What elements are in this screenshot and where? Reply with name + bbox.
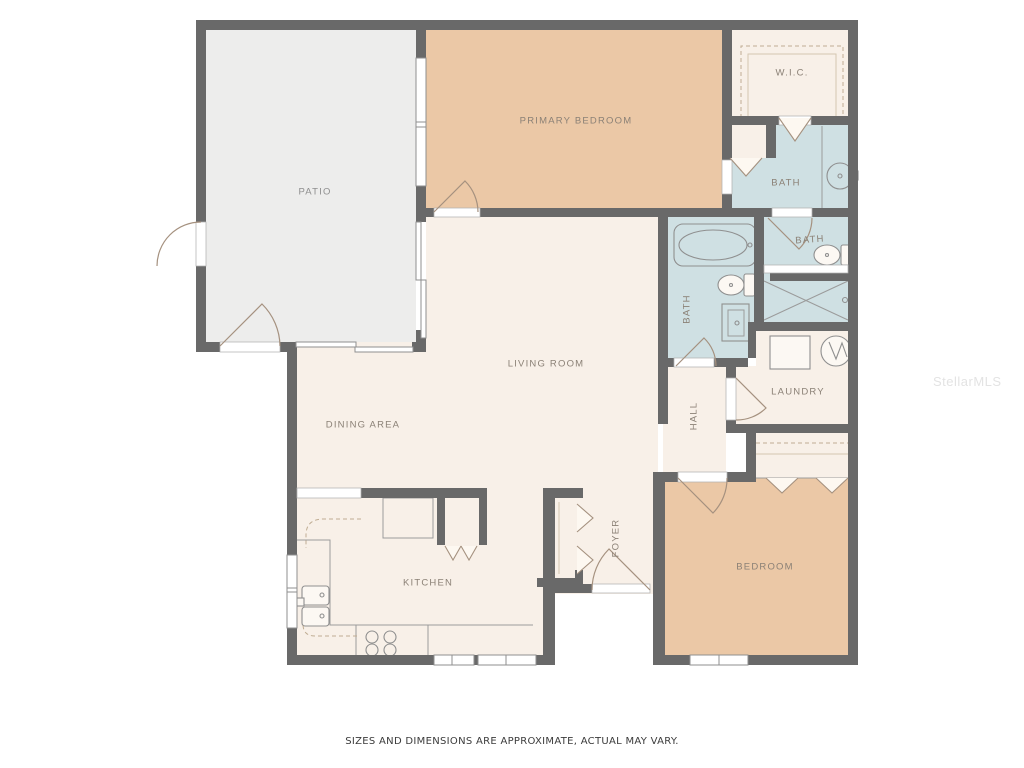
disclaimer-text: SIZES AND DIMENSIONS ARE APPROXIMATE, AC… [345,736,679,747]
room-label-bedroom: BEDROOM [736,562,794,573]
toilet-hall-bath [718,274,755,296]
living-room-floor [426,216,658,494]
room-label-living-room: LIVING ROOM [508,359,585,370]
bedroom-closet-floor [756,433,848,478]
washer [770,336,810,369]
room-label-primary-bedroom: PRIMARY BEDROOM [520,116,633,127]
shower-curb [764,265,848,273]
room-label-kitchen: KITCHEN [403,578,453,589]
dining-area-floor [292,342,426,494]
room-label-dining-area: DINING AREA [326,420,400,431]
room-label-laundry: LAUNDRY [771,387,825,398]
room-label-foyer: FOYER [611,519,622,558]
patio-exterior-door [157,222,201,266]
watermark: StellarMLS [933,374,1002,389]
kitchen-passthrough-counter [297,488,361,498]
room-label-hall: HALL [689,402,700,431]
room-label-wic: W.I.C. [775,68,808,79]
floor-plan-drawing [0,0,1024,768]
dryer [821,336,851,366]
linen-closet-floor [728,124,766,158]
toilet-bath2 [814,245,852,265]
floor-plan-page: PATIO PRIMARY BEDROOM W.I.C. BATH BATH B… [0,0,1024,768]
room-label-bath2: BATH [795,233,825,246]
room-label-hall-bath: BATH [682,294,693,323]
room-label-primary-bath: BATH [771,178,800,189]
room-label-patio: PATIO [298,187,331,198]
